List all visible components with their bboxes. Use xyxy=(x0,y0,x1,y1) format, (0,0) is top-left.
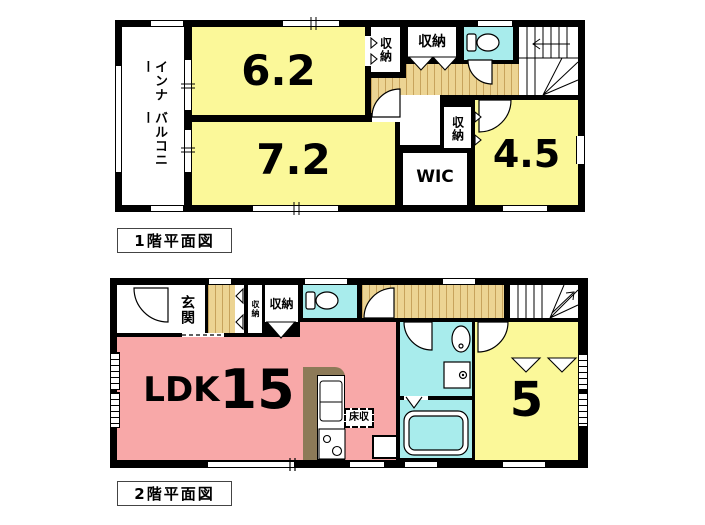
entrance-label: 玄関 xyxy=(172,287,202,332)
closet-1f-c-label: 収納 xyxy=(444,109,471,149)
toilet-room-1f xyxy=(464,27,513,60)
window xyxy=(350,461,384,468)
stairs-hall-2f xyxy=(362,285,504,318)
balcony-line2: バルコニー xyxy=(140,111,166,175)
ldk-text: LDK xyxy=(143,373,219,407)
window-shutter xyxy=(110,392,120,428)
caption-floor2: 2階平面図 xyxy=(117,481,232,506)
window-shutter xyxy=(110,352,120,390)
closet-1f-a-label: 収納 xyxy=(371,29,400,71)
kitchen-counter xyxy=(303,367,317,460)
wic-label: WIC xyxy=(398,162,472,192)
hallway-1f xyxy=(406,64,519,95)
closet-2f-a-label: 収納 xyxy=(248,287,262,331)
bathroom xyxy=(400,400,472,458)
window xyxy=(283,20,339,27)
inner-balcony-label: インナーバルコニー xyxy=(124,60,182,175)
window xyxy=(115,66,122,172)
window xyxy=(151,20,183,27)
entrance-hall-strip xyxy=(208,285,235,333)
window-shutter xyxy=(578,353,588,390)
kitchen-unit xyxy=(317,375,345,460)
room-4-5-label: 4.5 xyxy=(475,130,578,178)
room-7-2-label: 7.2 xyxy=(192,134,395,186)
window xyxy=(184,130,192,172)
window xyxy=(208,461,294,468)
window xyxy=(184,60,192,110)
closet-1f-b-label: 収納 xyxy=(408,27,456,57)
washroom xyxy=(400,322,472,396)
room-6-2-label: 6.2 xyxy=(192,45,365,97)
caption-floor1-text: 1階平面図 xyxy=(134,230,214,251)
window xyxy=(253,205,338,212)
room-5-label: 5 xyxy=(475,372,578,428)
window xyxy=(209,278,231,285)
window xyxy=(151,205,183,212)
window-shutter xyxy=(578,392,588,427)
floorplan-canvas: インナーバルコニー 6.2 7.2 収納 収納 収納 4.5 WIC 1階平面図… xyxy=(0,0,705,525)
floor-storage-label: 床収 xyxy=(344,408,374,428)
counter-box xyxy=(372,435,398,459)
stairs-1f xyxy=(519,27,578,95)
stairs-2f xyxy=(510,285,578,318)
window xyxy=(503,461,545,468)
toilet-room-2f xyxy=(303,285,357,318)
corridor-1f xyxy=(400,95,440,145)
closet-2f-b-label: 収納 xyxy=(265,285,298,322)
ldk-label: LDK15 xyxy=(130,360,308,420)
window xyxy=(478,20,512,27)
ldk-size-text: 15 xyxy=(220,363,295,417)
window xyxy=(405,461,437,468)
caption-floor2-text: 2階平面図 xyxy=(134,483,214,504)
window xyxy=(443,278,475,285)
window xyxy=(503,205,547,212)
caption-floor1: 1階平面図 xyxy=(117,228,232,253)
entrance-step xyxy=(182,333,224,337)
window xyxy=(576,136,585,164)
window xyxy=(305,278,347,285)
door-opening xyxy=(235,285,244,333)
balcony-line1: インナー xyxy=(140,60,166,111)
